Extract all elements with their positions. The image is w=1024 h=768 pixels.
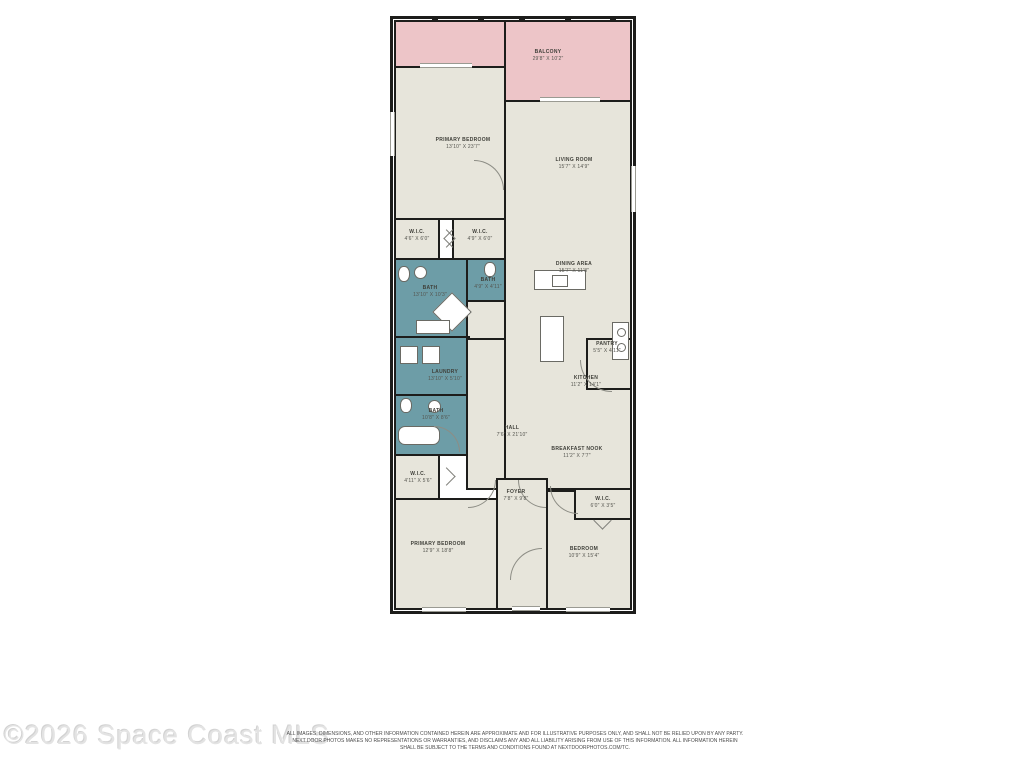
room-dims: 11'2" X 14'1" bbox=[571, 383, 602, 389]
sink-icon bbox=[414, 266, 427, 279]
room-label-wic-top-right: W.I.C. 4'9" X 6'0" bbox=[468, 230, 493, 242]
toilet-icon bbox=[484, 262, 496, 277]
room-dims: 6'0" X 3'5" bbox=[591, 504, 616, 510]
room-label-wic-top-left: W.I.C. 4'6" X 6'0" bbox=[405, 230, 430, 242]
room-linen-closet bbox=[466, 300, 506, 340]
disclaimer-line-3: SHALL BE SUBJECT TO THE TERMS AND CONDIT… bbox=[280, 745, 750, 752]
dryer-icon bbox=[422, 346, 440, 364]
room-balcony-left bbox=[394, 20, 506, 68]
kitchen-sink-icon bbox=[552, 275, 568, 287]
disclaimer: ALL IMAGES, DIMENSIONS, AND OTHER INFORM… bbox=[280, 731, 750, 752]
room-dims: 7'8" X 9'8" bbox=[504, 497, 529, 503]
room-balcony-right bbox=[504, 20, 632, 102]
room-dims: 15'7" X 11'8" bbox=[556, 269, 592, 275]
entry-door-gap bbox=[512, 606, 540, 611]
floor-plan: BALCONY 29'8" X 10'2" PRIMARY BEDROOM 13… bbox=[390, 16, 636, 614]
room-label-laundry: LAUNDRY 13'10" X 5'10" bbox=[428, 370, 462, 382]
room-label-hall: HALL 7'6" X 21'10" bbox=[497, 426, 528, 438]
room-name: KITCHEN bbox=[571, 376, 602, 382]
room-label-bath-lower: BATH 10'8" X 8'6" bbox=[422, 409, 450, 421]
floor-plan-image: BALCONY 29'8" X 10'2" PRIMARY BEDROOM 13… bbox=[0, 0, 1024, 768]
room-dims: 4'11" X 5'6" bbox=[404, 479, 432, 485]
room-laundry bbox=[394, 336, 470, 396]
room-label-wic-lower-right: W.I.C. 6'0" X 3'5" bbox=[591, 497, 616, 509]
balcony-post-icon bbox=[610, 16, 616, 21]
toilet-icon bbox=[398, 266, 410, 282]
washer-icon bbox=[400, 346, 418, 364]
room-name: W.I.C. bbox=[405, 230, 430, 236]
window-icon bbox=[422, 607, 466, 612]
disclaimer-line-2: NEXT DOOR PHOTOS MAKES NO REPRESENTATION… bbox=[280, 738, 750, 745]
room-name: BREAKFAST NOOK bbox=[551, 447, 602, 453]
room-name: BALCONY bbox=[533, 50, 564, 56]
balcony-post-icon bbox=[519, 16, 525, 21]
room-name: DINING AREA bbox=[556, 262, 592, 268]
vanity-icon bbox=[416, 320, 450, 334]
balcony-post-icon bbox=[478, 16, 484, 21]
room-dims: 4'9" X 6'0" bbox=[468, 237, 493, 243]
room-name: W.I.C. bbox=[591, 497, 616, 503]
room-name: BATH bbox=[474, 278, 502, 284]
toilet-icon bbox=[400, 398, 412, 413]
room-primary-bedroom-bottom bbox=[394, 498, 498, 610]
room-name: PANTRY bbox=[593, 342, 621, 348]
slider-door-icon bbox=[420, 63, 472, 68]
room-label-bath-primary: BATH 13'10" X 10'3" bbox=[413, 286, 447, 298]
room-dims: 29'8" X 10'2" bbox=[533, 57, 564, 63]
room-name: BEDROOM bbox=[569, 547, 600, 553]
room-label-kitchen: KITCHEN 11'2" X 14'1" bbox=[571, 376, 602, 388]
room-dims: 10'8" X 8'6" bbox=[422, 416, 450, 422]
room-hall bbox=[466, 338, 506, 490]
room-dims: 10'9" X 15'4" bbox=[569, 554, 600, 560]
room-label-primary-bedroom-bottom: PRIMARY BEDROOM 12'9" X 18'8" bbox=[411, 542, 466, 554]
room-name: PRIMARY BEDROOM bbox=[436, 138, 491, 144]
room-dims: 7'6" X 21'10" bbox=[497, 433, 528, 439]
room-name: W.I.C. bbox=[468, 230, 493, 236]
room-name: HALL bbox=[497, 426, 528, 432]
room-dims: 4'9" X 4'11" bbox=[474, 285, 502, 291]
room-dims: 4'6" X 6'0" bbox=[405, 237, 430, 243]
room-label-breakfast-nook: BREAKFAST NOOK 11'2" X 7'7" bbox=[551, 447, 602, 459]
room-name: LAUNDRY bbox=[428, 370, 462, 376]
slider-door-icon bbox=[540, 97, 600, 102]
room-name: BATH bbox=[413, 286, 447, 292]
window-icon bbox=[631, 166, 636, 212]
room-name: BATH bbox=[422, 409, 450, 415]
room-dims: 12'9" X 18'8" bbox=[411, 549, 466, 555]
room-dims: 5'5" X 4'11" bbox=[593, 349, 621, 355]
room-label-pantry: PANTRY 5'5" X 4'11" bbox=[593, 342, 621, 354]
room-name: PRIMARY BEDROOM bbox=[411, 542, 466, 548]
room-dims: 11'2" X 7'7" bbox=[551, 454, 602, 460]
room-label-living-room: LIVING ROOM 15'7" X 14'9" bbox=[556, 158, 593, 170]
window-icon bbox=[566, 607, 610, 612]
room-label-balcony: BALCONY 29'8" X 10'2" bbox=[533, 50, 564, 62]
room-label-primary-bedroom-top: PRIMARY BEDROOM 13'10" X 23'7" bbox=[436, 138, 491, 150]
refrigerator-icon bbox=[540, 316, 564, 362]
disclaimer-line-1: ALL IMAGES, DIMENSIONS, AND OTHER INFORM… bbox=[280, 731, 750, 738]
room-dims: 13'10" X 10'3" bbox=[413, 293, 447, 299]
room-dims: 13'10" X 5'10" bbox=[428, 377, 462, 383]
room-name: FOYER bbox=[504, 490, 529, 496]
balcony-post-icon bbox=[432, 16, 438, 21]
room-label-dining-area: DINING AREA 15'7" X 11'8" bbox=[556, 262, 592, 274]
balcony-post-icon bbox=[565, 16, 571, 21]
room-label-wic-lower-left: W.I.C. 4'11" X 5'6" bbox=[404, 472, 432, 484]
room-name: W.I.C. bbox=[404, 472, 432, 478]
room-label-foyer: FOYER 7'8" X 9'8" bbox=[504, 490, 529, 502]
room-dims: 15'7" X 14'9" bbox=[556, 165, 593, 171]
room-label-bath-small: BATH 4'9" X 4'11" bbox=[474, 278, 502, 290]
window-icon bbox=[390, 112, 395, 156]
room-dims: 13'10" X 23'7" bbox=[436, 145, 491, 151]
room-name: LIVING ROOM bbox=[556, 158, 593, 164]
room-label-bedroom: BEDROOM 10'9" X 15'4" bbox=[569, 547, 600, 559]
